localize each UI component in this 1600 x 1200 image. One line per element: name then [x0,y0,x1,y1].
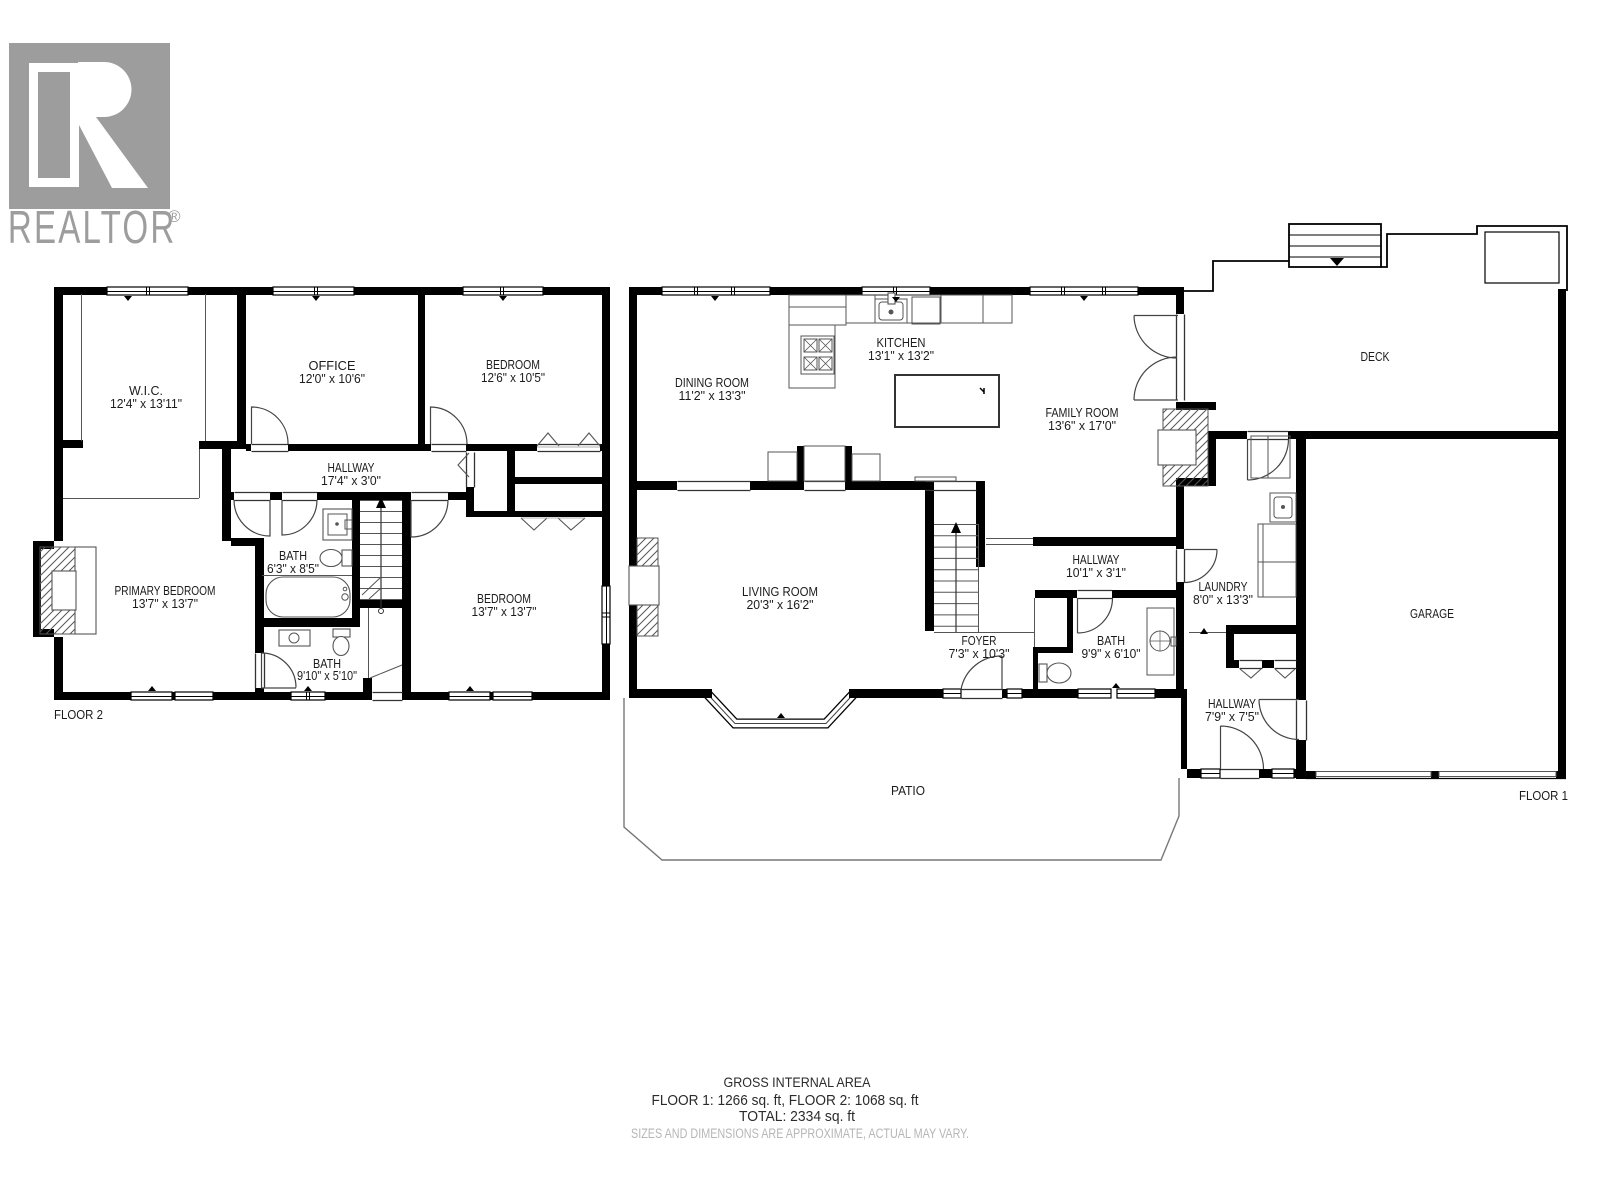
svg-text:REALTOR: REALTOR [8,203,176,253]
svg-text:12'0" x 10'6": 12'0" x 10'6" [299,372,365,386]
svg-text:BEDROOM: BEDROOM [486,358,540,372]
svg-text:10'1" x 3'1": 10'1" x 3'1" [1066,566,1126,580]
svg-text:FOYER: FOYER [962,634,997,648]
svg-text:PRIMARY BEDROOM: PRIMARY BEDROOM [115,584,216,598]
svg-text:12'4" x 13'11": 12'4" x 13'11" [110,397,182,411]
svg-text:9'10" x 5'10": 9'10" x 5'10" [297,669,357,683]
svg-text:BATH: BATH [1097,634,1125,648]
svg-text:12'6" x 10'5": 12'6" x 10'5" [481,371,545,385]
svg-text:LAUNDRY: LAUNDRY [1199,580,1248,594]
svg-text:FAMILY ROOM: FAMILY ROOM [1046,406,1119,420]
svg-text:11'2" x 13'3": 11'2" x 13'3" [679,389,746,403]
svg-text:13'7" x 13'7": 13'7" x 13'7" [472,605,537,619]
svg-text:FLOOR 1: 1266 sq. ft, FLOOR 2:: FLOOR 1: 1266 sq. ft, FLOOR 2: 1068 sq. … [652,1092,920,1109]
svg-text:HALLWAY: HALLWAY [328,461,375,475]
svg-text:17'4" x 3'0": 17'4" x 3'0" [321,474,381,488]
svg-text:DINING ROOM: DINING ROOM [675,376,749,390]
svg-text:KITCHEN: KITCHEN [877,336,926,350]
svg-text:7'9" x 7'5": 7'9" x 7'5" [1205,710,1259,724]
svg-text:GARAGE: GARAGE [1410,607,1454,621]
svg-text:13'7" x 13'7": 13'7" x 13'7" [132,597,198,611]
svg-text:SIZES AND DIMENSIONS ARE APPRO: SIZES AND DIMENSIONS ARE APPROXIMATE, AC… [631,1126,969,1141]
svg-text:13'6" x 17'0": 13'6" x 17'0" [1048,419,1116,433]
svg-text:7'3" x 10'3": 7'3" x 10'3" [949,647,1010,661]
svg-text:FLOOR 2: FLOOR 2 [54,707,103,722]
svg-text:GROSS INTERNAL AREA: GROSS INTERNAL AREA [724,1074,872,1090]
svg-text:HALLWAY: HALLWAY [1073,553,1120,567]
svg-text:13'1" x 13'2": 13'1" x 13'2" [868,349,934,363]
svg-text:8'0" x 13'3": 8'0" x 13'3" [1193,593,1253,607]
svg-text:TOTAL: 2334 sq. ft: TOTAL: 2334 sq. ft [739,1108,856,1125]
svg-text:6'3" x 8'5": 6'3" x 8'5" [267,562,319,576]
svg-text:DECK: DECK [1361,350,1390,364]
svg-text:BEDROOM: BEDROOM [477,592,531,606]
svg-text:W.I.C.: W.I.C. [129,384,163,398]
svg-text:PATIO: PATIO [891,784,925,798]
svg-text:20'3" x 16'2": 20'3" x 16'2" [747,598,814,612]
svg-text:LIVING ROOM: LIVING ROOM [742,585,818,599]
svg-text:®: ® [168,207,181,226]
svg-text:BATH: BATH [279,549,307,563]
svg-text:FLOOR 1: FLOOR 1 [1519,788,1568,803]
svg-text:HALLWAY: HALLWAY [1208,697,1256,711]
svg-text:9'9" x 6'10": 9'9" x 6'10" [1082,647,1141,661]
svg-text:OFFICE: OFFICE [309,359,356,373]
